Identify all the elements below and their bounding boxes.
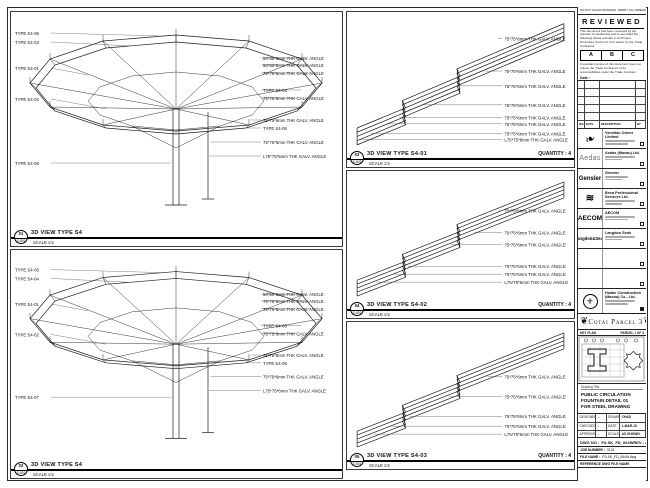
key-plan-label: KEY PLAN [580, 331, 596, 335]
callout-label: 75*75*6mm THK GALV. ANGLE [263, 353, 324, 358]
review-status-options: A B C [580, 50, 644, 61]
callout-label: 75*75*6mm THK GALV. ANGLE [504, 394, 565, 399]
view-scale: SCALE 1:5 [369, 161, 390, 166]
view-title: 3D VIEW TYPE S4 [31, 230, 82, 236]
umbrella-structure-3d-view: TYPE S4-05 TYPE S4-03 TYPE S4-01 TYPE S4… [11, 12, 342, 226]
drawn-label: DRAWN [607, 414, 621, 422]
review-checkbox [640, 142, 645, 147]
view-title: 3D VIEW TYPE S4-01 [367, 151, 427, 157]
callout-label: 75*75*6mm THK GALV. ANGLE [504, 242, 565, 247]
callout-label: 75*75*6mm THK GALV. ANGLE [263, 299, 324, 304]
review-checkbox [640, 282, 645, 287]
view-panel-mid-1: 75*75*6mm THK GALV. ANGLE 75*75*6mm THK … [346, 11, 575, 168]
callout-label: 75*75*6mm THK GALV. ANGLE [504, 231, 565, 236]
callout-label: L75*75*6mm THK GALV. ANGLE [504, 280, 568, 285]
contractor-crest-logo: ⚜ [583, 294, 598, 309]
callout-label: 50*50*5mm THK GALV. ANGLE [263, 56, 324, 61]
consultant-address-line [605, 236, 635, 238]
contractor-address-line [605, 303, 628, 305]
detail-sheet: S-501 [15, 239, 27, 245]
reference-dwg-label: REFERENCE DWG FILE NAME [580, 462, 629, 466]
callout-label: 75*75*6mm THK GALV. ANGLE [504, 131, 565, 136]
callout-label: 75*75*6mm THK GALV. ANGLE [263, 118, 324, 123]
date-label: DATE [607, 423, 621, 431]
callout-label: TYPE S4-04 [15, 276, 39, 281]
title-block-strip: DO NOT SCALE DRAWING. VERIFY ALL DIMENSI… [577, 7, 646, 481]
callout-label: 75*75*6mm THK GALV. ANGLE [504, 209, 565, 214]
consultant-address-line [605, 216, 635, 218]
callout-label: 50*50*5mm THK GALV. ANGLE [263, 292, 324, 297]
title-underline [347, 158, 574, 160]
view-title: 3D VIEW TYPE S4-03 [367, 453, 427, 459]
review-checkbox [640, 242, 645, 247]
revision-col-date: DATE [585, 121, 600, 128]
drawing-sheet: TYPE S4-05 TYPE S4-03 TYPE S4-01 TYPE S4… [0, 0, 650, 488]
callout-label: 75*75*6mm THK GALV. ANGLE [263, 96, 324, 101]
angle-bundle-3d-view: 75*75*6mm THK GALV. ANGLE 75*75*6mm THK … [347, 322, 574, 449]
view-scale: SCALE 1:5 [369, 312, 390, 317]
view-title: 3D VIEW TYPE S4-02 [367, 302, 427, 308]
key-plan-parcel-label: PARCEL 1 OF 3 [621, 331, 644, 335]
detail-number: 01 [15, 231, 27, 239]
consultant-row-empty [578, 269, 646, 289]
detail-bubble: 01 S-501 [14, 230, 28, 244]
project-name: Cotai Parcel 3 [588, 318, 643, 326]
callout-label: 75*75*6mm THK GALV. ANGLE [504, 69, 565, 74]
callout-label: L75*75*6mm THK GALV. ANGLE [263, 388, 326, 393]
dwg-number-label: DWG NO : [580, 440, 599, 445]
contractor-address-line [605, 300, 635, 302]
callout-label: TYPE S4-06 [263, 126, 287, 131]
callout-label: 75*75*6mm THK GALV. ANGLE [504, 84, 565, 89]
status-option-b: B [602, 51, 623, 60]
checked-value: - [596, 423, 606, 431]
sheet-note: DO NOT SCALE DRAWING. VERIFY ALL DIMENSI… [578, 7, 646, 15]
callout-label: TYPE S4-08 [15, 161, 39, 166]
callout-label: 75*75*6mm THK GALV. ANGLE [263, 375, 324, 380]
detail-number: 05 [351, 454, 363, 462]
consultant-address-line [605, 179, 622, 181]
callout-label: TYPE S4-03 [263, 324, 287, 329]
view-title: 3D VIEW TYPE S4 [31, 462, 82, 468]
drawing-info-table: DESIGNED - DRAWN CHAD CHECKED - DATE 1-M… [578, 414, 646, 438]
venetian-flourish-logo: ❧ [583, 130, 597, 146]
review-checkbox [640, 202, 645, 207]
review-checkbox [640, 262, 645, 267]
langdon-seah-logo: Langdon&Seah [578, 236, 603, 241]
left-callout-labels: TYPE S4-06 TYPE S4-04 TYPE S4-01 TYPE S4… [15, 268, 39, 400]
consultant-row-empty [578, 249, 646, 269]
consultant-address-line [605, 140, 635, 142]
callout-label: L75*75*6mm THK GALV. ANGLE [504, 432, 568, 437]
callout-labels: 75*75*6mm THK GALV. ANGLE 75*75*6mm THK … [504, 209, 568, 285]
info-row: DESIGNED - DRAWN CHAD [578, 414, 646, 423]
revision-header-row: NO. DATE DESCRIPTION BY [578, 121, 646, 128]
consultant-address-line [605, 176, 628, 178]
reviewed-stamp-body: This document has been reviewed by the r… [580, 30, 644, 49]
callout-label: 75*75*6mm THK GALV. ANGLE [263, 307, 324, 312]
left-callout-labels: TYPE S4-05 TYPE S4-03 TYPE S4-01 TYPE S4… [15, 31, 39, 166]
consultant-address-line [605, 159, 622, 161]
view-quantity: QUANTITY : 4 [538, 151, 571, 157]
job-number-label: JOB NUMBER : [580, 448, 605, 452]
designed-label: DESIGNED [578, 414, 596, 422]
callout-label: 75*75*6mm THK GALV. ANGLE [504, 264, 565, 269]
revision-col-desc: DESCRIPTION [600, 121, 636, 128]
revision-row [578, 105, 646, 113]
detail-sheet: S-501 [351, 160, 363, 166]
callout-label: TYPE S4-04 [263, 88, 287, 93]
view-title-bar: 04 S-501 3D VIEW TYPE S4-02 QUANTITY : 4… [347, 298, 574, 318]
revision-row [578, 97, 646, 105]
consultant-name: Venetian Orient Limited [605, 131, 644, 140]
callout-label: TYPE S4-03 [15, 40, 39, 45]
revision-table: NO. DATE DESCRIPTION BY [578, 81, 646, 129]
contractor-name: Hsabe Construction (Macau) Co., Ltd. [605, 291, 644, 300]
callout-label: L75*75*6mm THK GALV. ANGLE [263, 154, 326, 159]
review-checkbox [640, 222, 645, 227]
title-underline [11, 237, 342, 239]
consultant-row-venetian: ❧ Venetian Orient Limited [578, 129, 646, 149]
aecom-logo: AECOM [578, 215, 602, 222]
revision-col-no: NO. [578, 121, 585, 128]
view-panel-mid-3: 75*75*6mm THK GALV. ANGLE 75*75*6mm THK … [346, 321, 575, 470]
callout-label: 75*75*6mm THK GALV. ANGLE [504, 272, 565, 277]
callout-label: 75*75*6mm THK GALV. ANGLE [504, 375, 565, 380]
aedas-logo: Aedas [579, 155, 600, 162]
reviewed-stamp-title: REVIEWED [580, 16, 644, 29]
detail-sheet: S-501 [351, 311, 363, 317]
callout-label: TYPE S4-01 [15, 66, 39, 71]
consultant-row-langdon-seah: Langdon&Seah Langdon Seah [578, 229, 646, 249]
callout-label: 50*50*5mm THK GALV. ANGLE [263, 63, 324, 68]
title-underline [347, 309, 574, 311]
consultant-row-gensler: Gensler Gensler [578, 169, 646, 189]
angle-bundle-3d-view: 75*75*6mm THK GALV. ANGLE 75*75*6mm THK … [347, 12, 574, 147]
revision-col-by: BY [636, 121, 646, 128]
view-title-bar: 05 S-501 3D VIEW TYPE S4-03 QUANTITY : 4… [347, 449, 574, 469]
fleuron-icon: ❦ [643, 317, 646, 327]
view-title-bar: 02 S-501 3D VIEW TYPE S4 SCALE 1:5 [11, 458, 342, 478]
callout-label: TYPE S4-02 [15, 332, 39, 337]
view-scale: SCALE 1:5 [33, 240, 54, 245]
approved-label: APPROVED [578, 431, 596, 438]
detail-sheet: S-501 [15, 471, 27, 477]
detail-number: 02 [15, 463, 27, 471]
file-name-row: FILE NAME : P3-SK_FD_064W.dwg [578, 454, 646, 461]
key-plan-map [578, 336, 645, 382]
consultant-name: AECOM [605, 211, 644, 215]
revision-row [578, 113, 646, 121]
reviewed-stamp: REVIEWED This document has been reviewed… [578, 15, 646, 81]
title-underline [11, 469, 342, 471]
callout-label: 75*75*6mm THK GALV. ANGLE [504, 36, 565, 41]
callout-label: 75*75*6mm THK GALV. ANGLE [263, 140, 324, 145]
angle-bundle-3d-view: 75*75*6mm THK GALV. ANGLE 75*75*6mm THK … [347, 171, 574, 298]
drawing-title-box: Drawing Title PUBLIC CIRCULATION FOUNTAI… [578, 384, 646, 414]
callout-label: 75*75*6mm THK GALV. ANGLE [504, 424, 565, 429]
detail-number: 03 [351, 152, 363, 160]
consultant-row-aecom: AECOM AECOM [578, 209, 646, 229]
view-title-bar: 03 S-501 3D VIEW TYPE S4-01 QUANTITY : 4… [347, 147, 574, 167]
consultant-name: Aedas (Macau) Ltd. [605, 151, 644, 155]
consultant-address-line [605, 200, 635, 202]
detail-bubble: 03 S-501 [350, 151, 364, 165]
view-panel-mid-2: 75*75*6mm THK GALV. ANGLE 75*75*6mm THK … [346, 170, 575, 319]
drawing-title-line: FOR STEEL DRAWING [581, 404, 643, 410]
view-panel-left-top: TYPE S4-05 TYPE S4-03 TYPE S4-01 TYPE S4… [10, 11, 343, 247]
callout-label: 75*75*6mm THK GALV. ANGLE [504, 414, 565, 419]
consultant-row-aedas: Aedas Aedas (Macau) Ltd. [578, 149, 646, 169]
callout-labels: 75*75*6mm THK GALV. ANGLE 75*75*6mm THK … [504, 375, 568, 438]
dwg-number-row: DWG NO : P3-SK_FD_064W REV : A [578, 438, 646, 447]
scale-value: AS SHOWN [620, 431, 646, 438]
revision-row [578, 89, 646, 97]
callout-label: TYPE S4-06 [15, 268, 39, 273]
checked-label: CHECKED [578, 423, 596, 431]
view-title-bar: 01 S-501 3D VIEW TYPE S4 SCALE 1:5 [11, 226, 342, 246]
dwg-number-value: P3-SK_FD_064W [601, 440, 633, 445]
umbrella-structure-3d-view: TYPE S4-06 TYPE S4-04 TYPE S4-01 TYPE S4… [11, 250, 342, 458]
callout-label: 75*75*6mm THK GALV. ANGLE [504, 103, 565, 108]
consultant-row-beca: ≋ Beca Professional Services Ltd. [578, 189, 646, 209]
view-panel-left-bottom: TYPE S4-06 TYPE S4-04 TYPE S4-01 TYPE S4… [10, 249, 343, 479]
consultant-name: Langdon Seah [605, 231, 644, 235]
status-option-c: C [623, 51, 643, 60]
review-checkbox [640, 162, 645, 167]
view-quantity: QUANTITY : 4 [538, 453, 571, 459]
callout-label: TYPE S4-01 [15, 302, 39, 307]
detail-sheet: S-501 [351, 462, 363, 468]
callout-label: 75*75*6mm THK GALV. ANGLE [263, 331, 324, 336]
contractor-row: ⚜ Hsabe Construction (Macau) Co., Ltd. [578, 289, 646, 314]
callout-label: TYPE S4-07 [15, 395, 39, 400]
job-number-row: JOB NUMBER : 3132 [578, 447, 646, 454]
date-value: 1-MAR-15 [620, 423, 646, 431]
view-quantity: QUANTITY : 4 [538, 302, 571, 308]
review-checkbox [640, 307, 645, 312]
consultant-address-line [605, 143, 628, 145]
job-number-value: 3132 [607, 448, 615, 452]
detail-bubble: 05 S-501 [350, 453, 364, 467]
rev-label: REV : [633, 440, 644, 445]
drawn-value: CHAD [620, 414, 646, 422]
approved-value: - [596, 431, 606, 438]
reviewed-stamp-disclaimer: Consultant review of this document does … [580, 63, 644, 75]
consultant-name: Gensler [605, 171, 644, 175]
callout-label: 75*75*6mm THK GALV. ANGLE [504, 115, 565, 120]
view-scale: SCALE 1:5 [33, 472, 54, 477]
detail-number: 04 [351, 303, 363, 311]
callout-label: 75*75*6mm THK GALV. ANGLE [504, 122, 565, 127]
callout-label: TYPE S4-02 [15, 97, 39, 102]
callout-label: L75*75*6mm THK GALV. ANGLE [504, 138, 568, 143]
callout-label: 75*75*6mm THK GALV. ANGLE [263, 71, 324, 76]
rev-value: A [645, 440, 646, 445]
title-underline [347, 460, 574, 462]
callout-label: TYPE S4-05 [15, 31, 39, 36]
consultant-address-line [605, 156, 635, 158]
detail-bubble: 02 S-501 [14, 462, 28, 476]
project-banner: ❦ Cotai Parcel 3 ❦ [578, 314, 646, 330]
callout-label: TYPE S4-05 [263, 361, 287, 366]
consultant-name: Beca Professional Services Ltd. [605, 191, 644, 200]
scale-label: SCALE [607, 431, 621, 438]
detail-bubble: 04 S-501 [350, 302, 364, 316]
info-row: CHECKED - DATE 1-MAR-15 [578, 423, 646, 432]
status-option-a: A [581, 51, 602, 60]
file-name-label: FILE NAME : [580, 455, 600, 459]
view-scale: SCALE 1:5 [369, 463, 390, 468]
designed-value: - [596, 414, 606, 422]
gensler-logo: Gensler [579, 176, 601, 182]
consultant-address-line [605, 203, 622, 205]
beca-waves-logo: ≋ [586, 193, 594, 204]
consultant-address-line [605, 239, 622, 241]
file-name-value: P3-SK_FD_064W.dwg [602, 455, 636, 459]
drawing-title-label: Drawing Title [581, 385, 643, 390]
fleuron-icon: ❦ [580, 317, 588, 327]
info-row: APPROVED - SCALE AS SHOWN [578, 431, 646, 438]
key-plan: KEY PLAN PARCEL 1 OF 3 [578, 330, 646, 384]
reference-dwg-row: REFERENCE DWG FILE NAME [578, 461, 646, 468]
review-checkbox [640, 182, 645, 187]
revision-row [578, 81, 646, 89]
consultant-address-line [605, 219, 628, 221]
